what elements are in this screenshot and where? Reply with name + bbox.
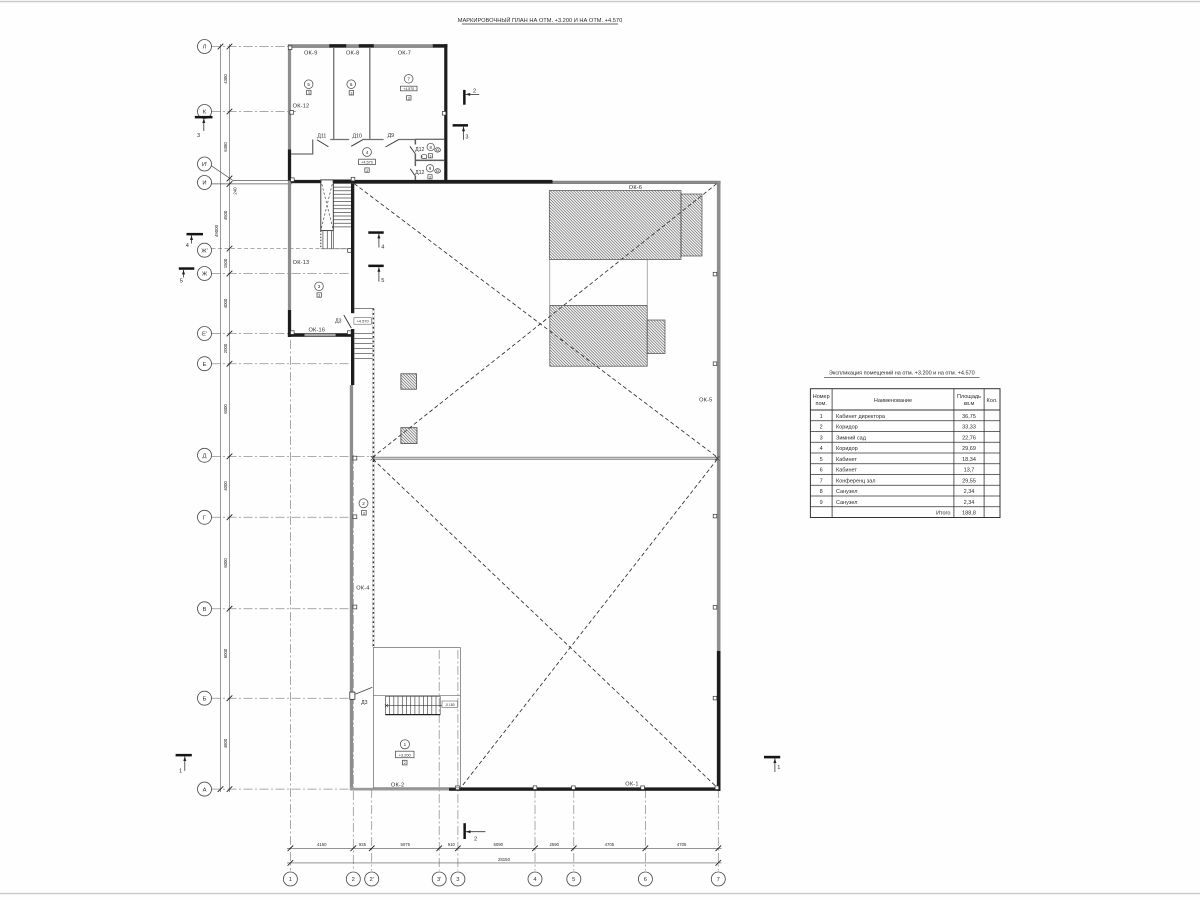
svg-text:2: 2	[362, 501, 365, 506]
svg-text:1500: 1500	[223, 258, 228, 268]
svg-text:А: А	[203, 787, 207, 793]
svg-text:ОК-1: ОК-1	[625, 782, 638, 788]
svg-text:И: И	[202, 181, 206, 187]
svg-text:6: 6	[350, 82, 353, 87]
svg-text:Номер: Номер	[813, 394, 830, 400]
svg-text:Д: Д	[203, 454, 207, 460]
svg-text:3: 3	[429, 154, 431, 158]
svg-text:Кол.: Кол.	[987, 398, 998, 404]
svg-text:4: 4	[820, 446, 823, 452]
svg-text:+4.570: +4.570	[356, 319, 369, 324]
svg-text:2,34: 2,34	[964, 500, 975, 506]
svg-text:13,7: 13,7	[964, 468, 975, 474]
svg-text:ОК-6: ОК-6	[629, 185, 642, 191]
svg-text:-0.180: -0.180	[445, 703, 455, 707]
svg-text:6: 6	[820, 468, 823, 474]
svg-text:4: 4	[366, 150, 369, 155]
svg-text:ОК-16: ОК-16	[308, 328, 325, 334]
svg-text:188,8: 188,8	[962, 511, 976, 517]
svg-text:Площадь: Площадь	[957, 394, 981, 400]
svg-text:5: 5	[820, 457, 823, 463]
svg-text:Д11: Д11	[317, 134, 326, 140]
svg-text:3: 3	[366, 169, 368, 173]
svg-text:3: 3	[820, 435, 823, 441]
svg-text:6: 6	[644, 877, 647, 883]
svg-text:Д9: Д9	[388, 133, 395, 139]
svg-text:3: 3	[318, 284, 321, 289]
svg-text:ОК-13: ОК-13	[293, 260, 310, 266]
svg-text:4: 4	[381, 244, 384, 250]
svg-text:4500: 4500	[223, 210, 228, 220]
svg-text:Д3: Д3	[335, 319, 342, 325]
svg-text:7: 7	[820, 478, 823, 484]
svg-text:3: 3	[456, 877, 459, 883]
svg-text:ОК-5: ОК-5	[699, 398, 712, 404]
svg-text:4000: 4000	[223, 298, 228, 308]
svg-text:1: 1	[289, 877, 292, 883]
svg-text:4705: 4705	[605, 842, 615, 847]
svg-text:29,69: 29,69	[962, 446, 976, 452]
svg-text:3: 3	[408, 97, 410, 101]
svg-text:+4.570: +4.570	[403, 87, 414, 91]
svg-text:Кабинет: Кабинет	[836, 468, 857, 474]
svg-text:кв.м: кв.м	[964, 401, 975, 407]
svg-text:Кабинет: Кабинет	[836, 457, 857, 463]
svg-text:Ж: Ж	[202, 272, 208, 278]
svg-text:925: 925	[359, 842, 367, 847]
svg-text:8: 8	[820, 489, 823, 495]
svg-text:4: 4	[186, 243, 189, 249]
svg-text:2,34: 2,34	[964, 489, 975, 495]
svg-text:Д10: Д10	[353, 134, 362, 140]
svg-text:5: 5	[180, 279, 183, 285]
svg-text:Санузел: Санузел	[836, 500, 857, 506]
svg-text:6000: 6000	[223, 648, 228, 658]
svg-text:+3.200: +3.200	[399, 752, 412, 757]
svg-text:ОК-9: ОК-9	[304, 50, 317, 56]
svg-text:1: 1	[179, 769, 182, 775]
svg-text:6000: 6000	[223, 558, 228, 568]
svg-text:3': 3'	[437, 877, 441, 883]
svg-text:1: 1	[777, 765, 780, 771]
svg-text:5075: 5075	[401, 842, 411, 847]
svg-text:МАРКИРОВОЧНЫЙ ПЛАН НА ОТМ. +3.: МАРКИРОВОЧНЫЙ ПЛАН НА ОТМ. +3.200 И НА О…	[458, 16, 623, 24]
svg-text:Экспликация помещений на отм.: Экспликация помещений на отм. +3.200 и н…	[829, 370, 975, 377]
svg-text:4380: 4380	[223, 74, 228, 84]
svg-text:3: 3	[465, 134, 468, 140]
svg-text:2: 2	[473, 89, 476, 95]
svg-text:3: 3	[429, 175, 431, 179]
svg-text:Е: Е	[203, 362, 207, 368]
svg-text:ОК-4: ОК-4	[356, 586, 369, 592]
svg-text:Л: Л	[203, 45, 207, 51]
svg-text:7: 7	[717, 877, 720, 883]
svg-text:910: 910	[448, 842, 456, 847]
svg-text:4150: 4150	[317, 842, 327, 847]
svg-text:3: 3	[318, 294, 320, 298]
svg-text:Кабинет директора: Кабинет директора	[836, 414, 886, 420]
svg-text:ОК-12: ОК-12	[293, 103, 310, 109]
svg-text:1: 1	[820, 414, 823, 420]
svg-text:В: В	[203, 607, 207, 613]
svg-text:28150: 28150	[498, 857, 511, 862]
svg-text:3: 3	[197, 133, 200, 139]
svg-text:Б: Б	[203, 696, 207, 702]
svg-text:Итого: Итого	[936, 511, 950, 517]
svg-text:5: 5	[572, 877, 575, 883]
svg-text:Санузел: Санузел	[836, 489, 857, 495]
svg-text:2: 2	[404, 761, 406, 765]
svg-text:Зимний сад: Зимний сад	[836, 434, 867, 441]
svg-text:18,34: 18,34	[962, 457, 976, 463]
svg-text:3: 3	[308, 91, 310, 95]
svg-text:Ж': Ж'	[201, 248, 207, 254]
svg-text:6000: 6000	[223, 404, 228, 414]
svg-text:4800: 4800	[223, 738, 228, 748]
svg-text:7: 7	[407, 77, 410, 82]
svg-text:Наименование: Наименование	[874, 398, 912, 404]
svg-text:5: 5	[307, 82, 310, 87]
svg-text:3: 3	[350, 92, 352, 96]
svg-text:2': 2'	[370, 877, 374, 883]
svg-text:Д3: Д3	[361, 700, 368, 706]
svg-text:240: 240	[233, 187, 238, 195]
svg-text:49000: 49000	[214, 224, 219, 237]
svg-text:36,75: 36,75	[962, 414, 976, 420]
svg-text:4000: 4000	[223, 481, 228, 491]
svg-text:4705: 4705	[677, 842, 687, 847]
svg-text:Д12: Д12	[415, 147, 424, 153]
svg-text:пом.: пом.	[816, 401, 828, 407]
svg-text:Конференц зал: Конференц зал	[836, 478, 876, 484]
svg-text:+4.570: +4.570	[361, 160, 373, 164]
svg-text:Коридор: Коридор	[836, 446, 858, 452]
svg-text:Д12: Д12	[415, 170, 424, 176]
svg-text:ОК-8: ОК-8	[346, 50, 359, 56]
svg-text:2: 2	[820, 425, 823, 431]
svg-text:2: 2	[352, 877, 355, 883]
svg-text:33,33: 33,33	[962, 425, 976, 431]
svg-text:Е': Е'	[202, 332, 207, 338]
svg-text:Коридор: Коридор	[836, 425, 858, 431]
svg-text:6380: 6380	[223, 142, 228, 152]
svg-text:1: 1	[404, 742, 407, 747]
svg-text:9: 9	[820, 500, 823, 506]
svg-text:22,76: 22,76	[962, 435, 976, 441]
svg-text:3: 3	[363, 511, 365, 515]
svg-text:2000: 2000	[223, 343, 228, 353]
svg-text:5090: 5090	[494, 842, 504, 847]
svg-text:2590: 2590	[550, 842, 560, 847]
svg-text:2: 2	[474, 837, 477, 843]
svg-text:И': И'	[202, 162, 207, 168]
svg-text:ОК-7: ОК-7	[398, 50, 411, 56]
svg-text:29,55: 29,55	[962, 478, 976, 484]
svg-text:5: 5	[381, 278, 384, 284]
